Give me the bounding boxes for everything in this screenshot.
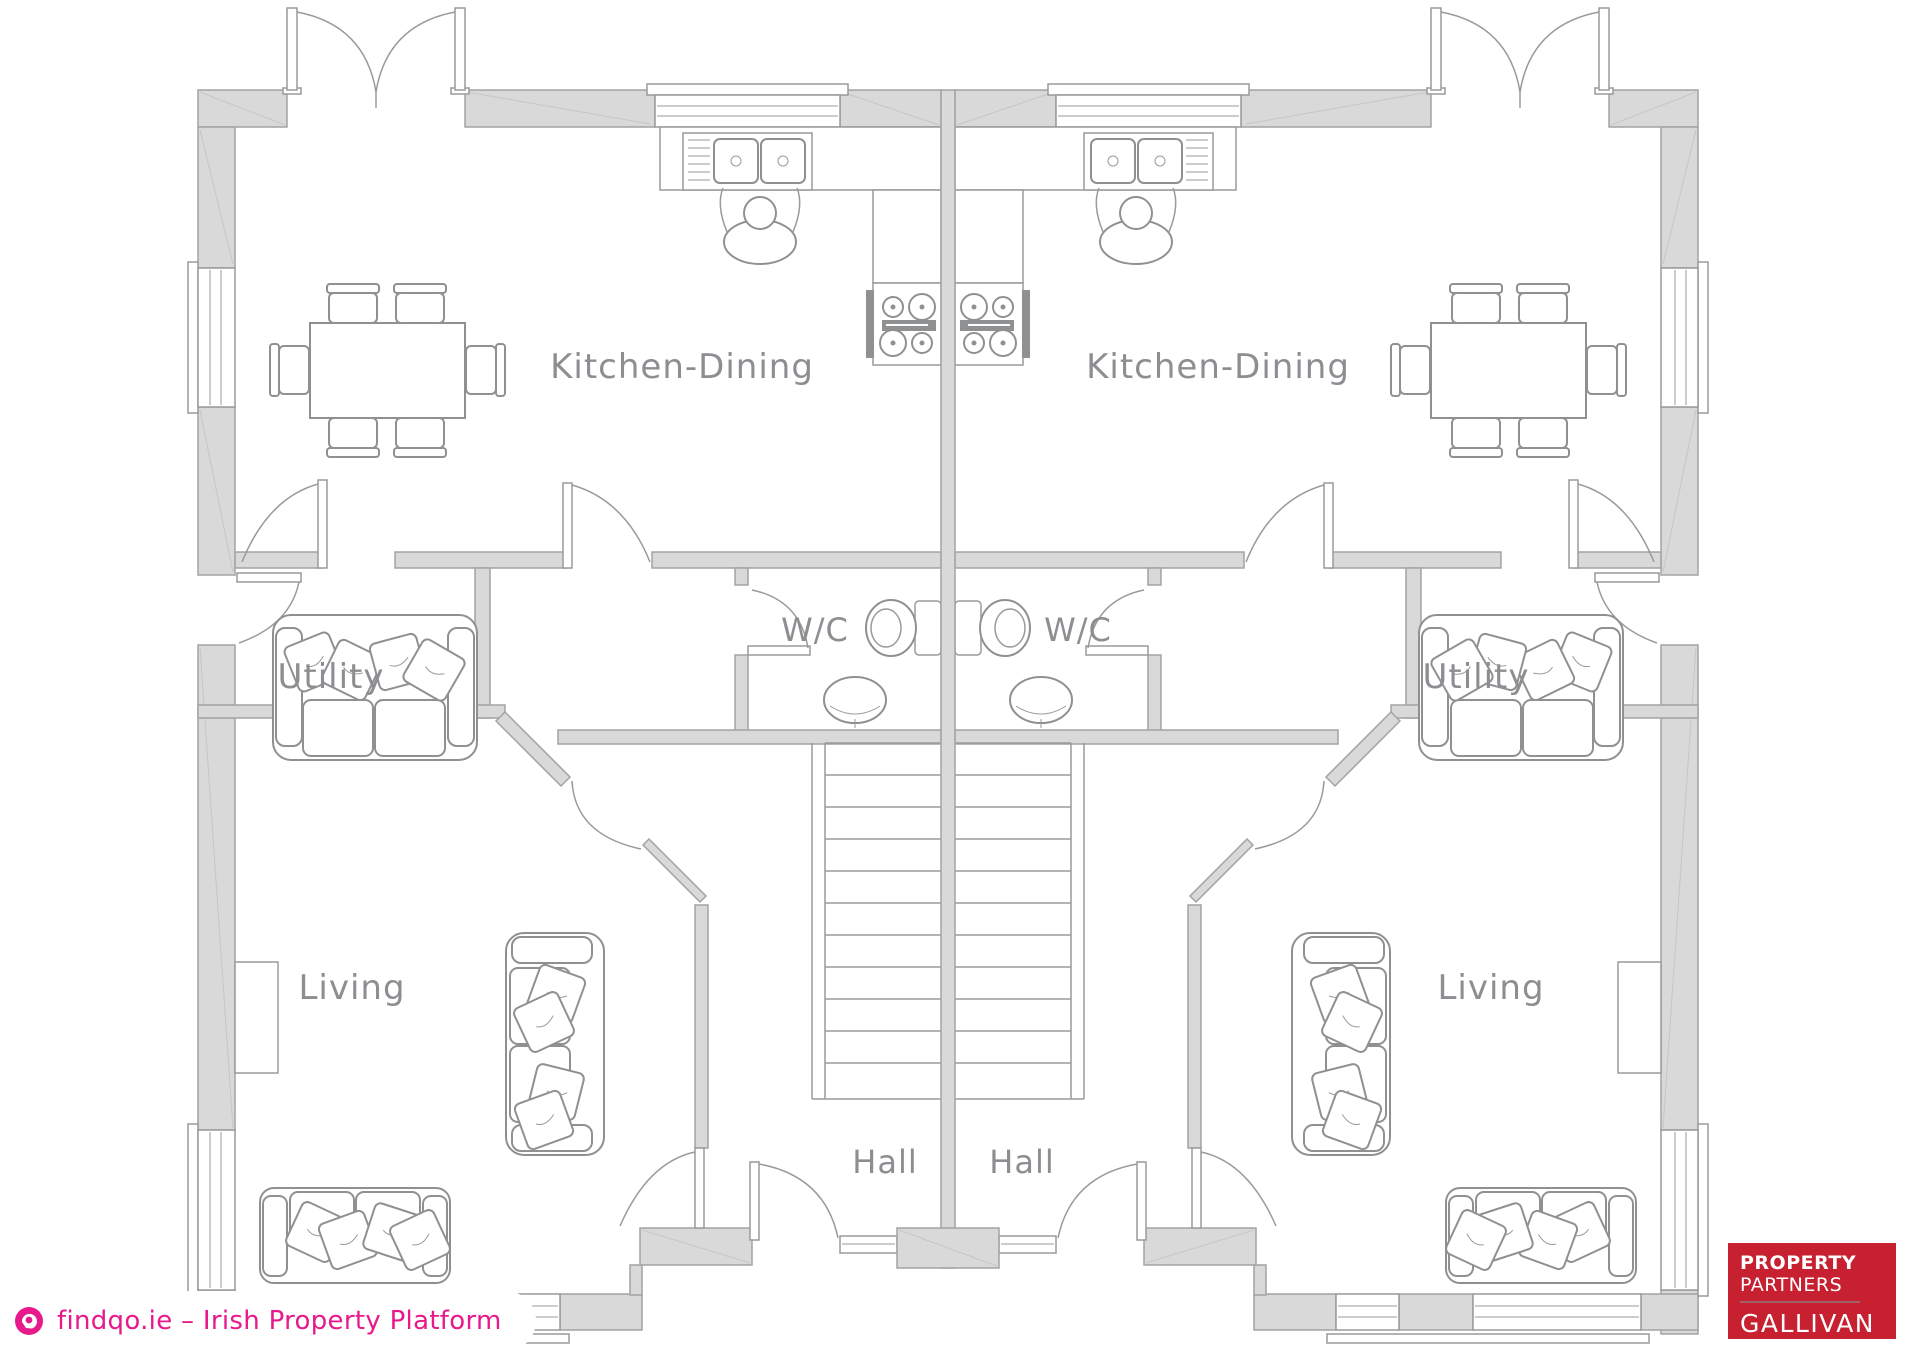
findqo-globe-icon bbox=[14, 1306, 44, 1336]
room-label-hall-left: Hall bbox=[852, 1143, 917, 1181]
watermark-text: findqo.ie – Irish Property Platform bbox=[57, 1306, 502, 1336]
agency-logo: PROPERTY PARTNERS GALLIVAN bbox=[1728, 1243, 1896, 1339]
room-label-hall-right: Hall bbox=[989, 1143, 1054, 1181]
agency-logo-line2: PARTNERS bbox=[1740, 1275, 1884, 1296]
right-unit bbox=[955, 8, 1708, 1343]
room-label-utility-right: Utility bbox=[1422, 657, 1529, 697]
room-label-wc-right: W/C bbox=[1044, 611, 1112, 649]
room-label-living-right: Living bbox=[1437, 968, 1544, 1008]
room-label-utility-left: Utility bbox=[277, 657, 384, 697]
agency-logo-name: GALLIVAN bbox=[1740, 1309, 1884, 1338]
room-label-kitchen-dining-right: Kitchen-Dining bbox=[1086, 347, 1350, 387]
floorplan-page: Kitchen-Dining Kitchen-Dining Utility Ut… bbox=[0, 0, 1920, 1362]
room-label-kitchen-dining-left: Kitchen-Dining bbox=[550, 347, 814, 387]
watermark-pill: findqo.ie – Irish Property Platform bbox=[0, 1291, 536, 1351]
agency-logo-divider bbox=[1740, 1301, 1860, 1303]
room-label-wc-left: W/C bbox=[781, 611, 849, 649]
agency-logo-line1: PROPERTY bbox=[1740, 1253, 1884, 1274]
room-label-living-left: Living bbox=[298, 968, 405, 1008]
